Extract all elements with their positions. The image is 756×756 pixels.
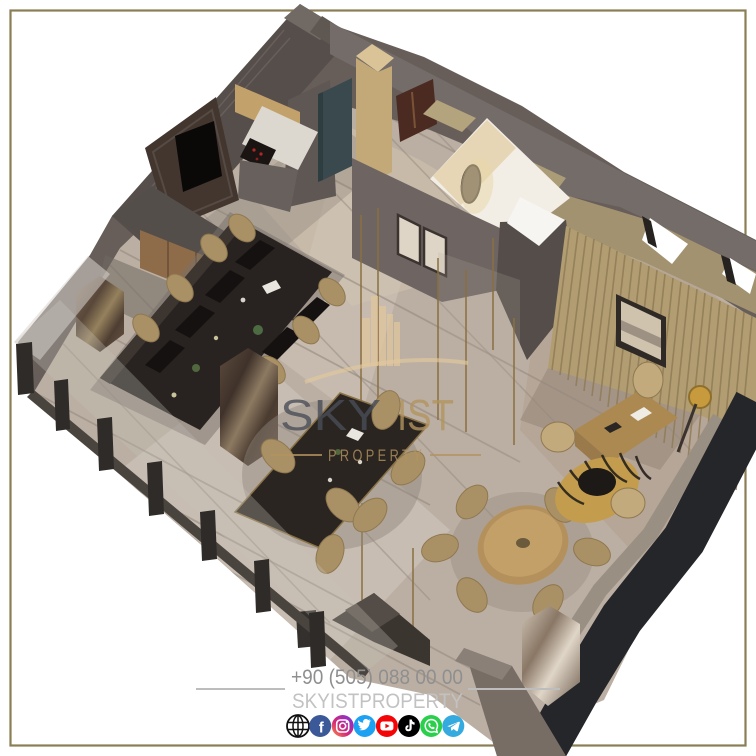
svg-text:SKYISTPROPERTY: SKYISTPROPERTY bbox=[292, 689, 463, 713]
svg-text:PROPERTY: PROPERTY bbox=[328, 446, 425, 465]
svg-text:+90 (505) 088 00 00: +90 (505) 088 00 00 bbox=[291, 666, 463, 689]
svg-text:SKY: SKY bbox=[280, 391, 381, 440]
svg-text:IST: IST bbox=[397, 391, 454, 440]
